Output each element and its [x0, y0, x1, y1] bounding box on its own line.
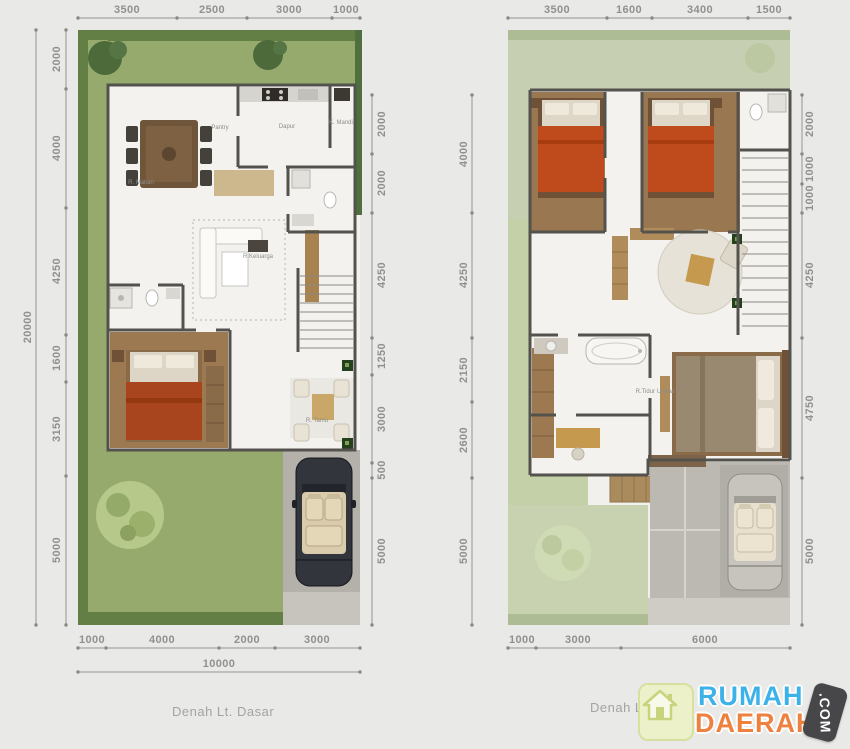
- dim-label: 1500: [756, 4, 782, 16]
- dim-label: 3000: [276, 4, 302, 16]
- dim-label: 3500: [114, 4, 140, 16]
- dim-label: 2150: [458, 357, 470, 383]
- dim-label: 2000: [804, 111, 816, 137]
- dim-label: 3400: [687, 4, 713, 16]
- room-label-family: R.Keluarga: [243, 254, 273, 260]
- dim-label: 3000: [565, 634, 591, 646]
- dim-label: 3500: [544, 4, 570, 16]
- dim-label: 4000: [149, 634, 175, 646]
- tv-cabinet: [305, 230, 319, 302]
- dim-label: 2000: [376, 170, 388, 196]
- dim-label: 2500: [199, 4, 225, 16]
- dim-label: 6000: [692, 634, 718, 646]
- left-plan-drawing: [34, 16, 373, 673]
- pantry-island: [214, 170, 274, 196]
- dim-label: 5000: [804, 538, 816, 564]
- dim-label: 2000: [234, 634, 260, 646]
- dim-label: 3150: [51, 416, 63, 442]
- dim-label: 4000: [458, 141, 470, 167]
- carport-roof: [648, 455, 790, 625]
- logo-word-rumah: RUMAH: [698, 683, 804, 710]
- bedroom2-bed: [648, 98, 722, 198]
- dim-label: 2600: [458, 427, 470, 453]
- floorplan-graphics: [0, 0, 850, 749]
- dim-label: 3000: [376, 406, 388, 432]
- dim-label: 5000: [376, 538, 388, 564]
- dim-label: 5000: [458, 538, 470, 564]
- dim-label: 3000: [304, 634, 330, 646]
- logo-badge-text: .COM: [816, 692, 833, 733]
- dim-label: 2000: [376, 111, 388, 137]
- dim-label-total-width: 10000: [203, 658, 236, 670]
- dim-label: 4750: [804, 395, 816, 421]
- room-label-guest: R. Tamu: [306, 418, 328, 424]
- dim-label: 1000: [79, 634, 105, 646]
- dim-label: 1600: [616, 4, 642, 16]
- left-plan-caption: Denah Lt. Dasar: [172, 704, 274, 719]
- car-under-roof: [728, 474, 782, 590]
- dim-label: 1000: [509, 634, 535, 646]
- dim-label: 1600: [51, 345, 63, 371]
- dim-label: 4250: [376, 262, 388, 288]
- dim-label: 4000: [51, 135, 63, 161]
- dim-label: 1000: [804, 185, 816, 211]
- site-logo[interactable]: RUMAH DAERAH .COM: [638, 681, 850, 745]
- dim-label: 500: [376, 460, 388, 480]
- room-label-master: R.Tidur Utama: [636, 389, 675, 395]
- dim-label: 4250: [51, 258, 63, 284]
- floorplan-image: 3500 2500 3000 1000 20000 2000 4000 4250…: [0, 0, 850, 749]
- dim-label-total-height: 20000: [22, 311, 34, 344]
- room-label-kitchen: Dapur: [279, 124, 295, 130]
- sitting-area: [658, 230, 749, 314]
- dim-label: 4250: [804, 262, 816, 288]
- dim-label: 1250: [376, 343, 388, 369]
- dim-label: 1000: [333, 4, 359, 16]
- master-bed: [660, 350, 790, 458]
- room-label-bath: K. Mandi: [329, 120, 353, 126]
- house-icon: [638, 683, 694, 741]
- right-plan-caption: Denah L: [590, 700, 643, 715]
- bedroom1-bed: [530, 98, 604, 198]
- room-label-pantry: Pantry: [211, 125, 228, 131]
- room-label-dining: R. Makan: [128, 180, 154, 186]
- car: [292, 458, 356, 586]
- dim-label: 2000: [51, 46, 63, 72]
- dim-label: 5000: [51, 537, 63, 563]
- logo-word-daerah: DAERAH: [695, 710, 817, 737]
- dim-label: 1000: [804, 156, 816, 182]
- logo-com-badge: .COM: [801, 681, 849, 743]
- right-plan-drawing: [470, 16, 803, 649]
- dim-label: 4250: [458, 262, 470, 288]
